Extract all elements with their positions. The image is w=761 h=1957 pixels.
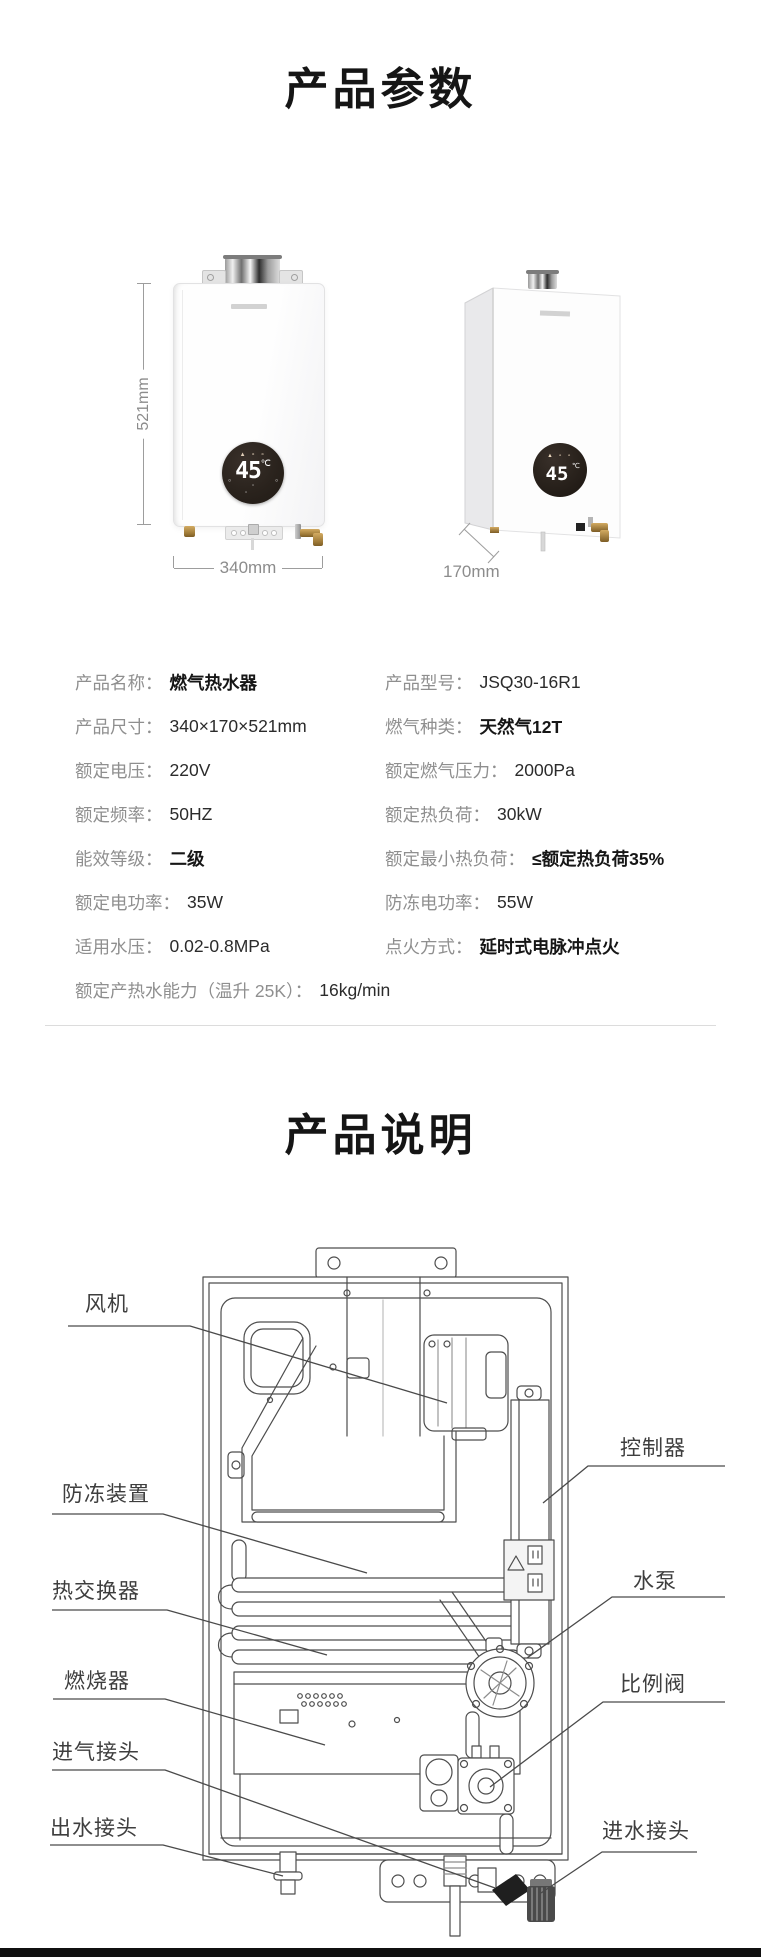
front-center-pipe xyxy=(251,538,254,550)
diagram-label-water-pump: 水泵 xyxy=(633,1565,677,1595)
dimension-width: 340mm xyxy=(173,556,323,580)
spec-label: 额定热负荷： xyxy=(385,802,490,827)
spec-row: 额定燃气压力：2000Pa xyxy=(385,748,664,792)
spec-row: 能效等级：二级 xyxy=(75,836,390,880)
front-center-clamp xyxy=(248,524,259,535)
spec-value: 16kg/min xyxy=(319,980,390,1001)
brand-logo xyxy=(231,304,267,309)
side-brass-connector xyxy=(600,530,609,542)
spec-row: 额定电压：220V xyxy=(75,748,390,792)
diagram-label-controller: 控制器 xyxy=(620,1432,686,1462)
top-mounting-bracket xyxy=(316,1248,456,1278)
display-bottom-icons: ∘ ∘ xyxy=(222,482,284,496)
spec-row: 额定产热水能力（温升 25K）：16kg/min xyxy=(75,968,390,1012)
dimension-height: 521mm xyxy=(143,283,144,525)
display-indicator-icons: ▲ ∘ ∘ xyxy=(222,451,284,458)
spec-label: 产品尺寸： xyxy=(75,714,163,739)
side-display-icons: ▲ ∘ ∘ xyxy=(547,453,572,459)
next-section-edge xyxy=(0,1948,761,1957)
diagram-label-gas-inlet: 进气接头 xyxy=(52,1736,140,1766)
spec-label: 额定最小热负荷： xyxy=(385,846,525,871)
front-right-connector xyxy=(313,533,323,546)
spec-label: 产品名称： xyxy=(75,670,163,695)
spec-value: 延时式电脉冲点火 xyxy=(480,934,620,959)
spec-row: 产品型号：JSQ30-16R1 xyxy=(385,660,664,704)
diagram-label-proportional-valve: 比例阀 xyxy=(620,1668,686,1698)
side-front-face xyxy=(493,288,620,538)
spec-label: 产品型号： xyxy=(385,670,473,695)
side-black-fitting xyxy=(576,523,585,531)
spec-label: 防冻电功率： xyxy=(385,890,490,915)
spec-value: JSQ30-16R1 xyxy=(480,672,581,693)
spec-row: 额定频率：50HZ xyxy=(75,792,390,836)
spec-row: 额定最小热负荷：≤额定热负荷35% xyxy=(385,836,664,880)
side-brand-logo xyxy=(540,310,570,316)
side-left-foot xyxy=(490,527,499,533)
spec-row: 适用水压：0.02-0.8MPa xyxy=(75,924,390,968)
leader-controller xyxy=(543,1466,725,1503)
spec-value: 燃气热水器 xyxy=(170,670,258,695)
spec-value: 220V xyxy=(170,760,211,781)
diagram-label-water-inlet: 进水接头 xyxy=(602,1815,690,1845)
front-left-fitting xyxy=(184,526,195,537)
spec-value: 50HZ xyxy=(170,804,213,825)
dimension-height-label: 521mm xyxy=(135,369,153,438)
diagram-label-fan: 风机 xyxy=(85,1288,129,1318)
side-flue-pipe xyxy=(528,272,557,289)
spec-value: 2000Pa xyxy=(515,760,575,781)
section-divider xyxy=(45,1025,716,1026)
side-display-unit: ℃ xyxy=(572,463,580,470)
spec-value: 35W xyxy=(187,892,223,913)
side-left-face xyxy=(465,288,493,530)
spec-row: 产品名称：燃气热水器 xyxy=(75,660,390,704)
product-detail-page: 产品参数 521mm ▲ ∘ ∘ 45℃ ∘ ∘ ∘ ∘ 340mm xyxy=(0,0,761,1957)
temperature-display: ▲ ∘ ∘ 45℃ ∘ ∘ ∘ ∘ xyxy=(222,442,284,504)
spec-label: 额定电压： xyxy=(75,758,163,783)
spec-label: 适用水压： xyxy=(75,934,163,959)
spec-value: ≤额定热负荷35% xyxy=(532,846,664,871)
spec-row: 防冻电功率：55W xyxy=(385,880,664,924)
fan-assembly xyxy=(424,1335,508,1440)
product-front-view: ▲ ∘ ∘ 45℃ ∘ ∘ ∘ ∘ xyxy=(173,283,325,527)
drain-pipe xyxy=(450,1886,460,1936)
flue-rim xyxy=(223,255,282,259)
dimension-depth-label: 170mm xyxy=(443,562,500,581)
spec-label: 额定电功率： xyxy=(75,890,180,915)
diagram-label-water-outlet: 出水接头 xyxy=(50,1812,138,1842)
spec-row: 产品尺寸：340×170×521mm xyxy=(75,704,390,748)
spec-row: 燃气种类：天然气12T xyxy=(385,704,664,748)
spec-row: 点火方式：延时式电脉冲点火 xyxy=(385,924,664,968)
spec-value: 0.02-0.8MPa xyxy=(170,936,270,957)
spec-value: 天然气12T xyxy=(480,714,563,739)
side-display-value: 45 xyxy=(546,463,569,485)
spec-label: 燃气种类： xyxy=(385,714,473,739)
spec-value: 30kW xyxy=(497,804,542,825)
spec-value: 二级 xyxy=(170,846,205,871)
controller-board xyxy=(504,1386,554,1658)
product-side-view: ▲ ∘ ∘ 45 ℃ 170mm xyxy=(440,255,650,585)
spec-label: 点火方式： xyxy=(385,934,473,959)
celsius-unit: ℃ xyxy=(261,459,271,469)
side-center-pipe xyxy=(541,532,545,551)
diagram-label-antifreeze: 防冻装置 xyxy=(62,1478,150,1508)
diagram-label-burner: 燃烧器 xyxy=(64,1665,130,1695)
parameters-section-title: 产品参数 xyxy=(0,66,761,114)
spec-label: 能效等级： xyxy=(75,846,163,871)
diagram-label-heat-exchanger: 热交换器 xyxy=(52,1575,140,1605)
flue-pipe xyxy=(225,258,280,283)
spec-value: 340×170×521mm xyxy=(170,716,307,737)
spec-row: 额定电功率：35W xyxy=(75,880,390,924)
spec-column-left: 产品名称：燃气热水器 产品尺寸：340×170×521mm 额定电压：220V … xyxy=(75,660,390,1012)
spec-label: 额定产热水能力（温升 25K）： xyxy=(75,978,312,1003)
spec-label: 额定燃气压力： xyxy=(385,758,508,783)
spec-column-right: 产品型号：JSQ30-16R1 燃气种类：天然气12T 额定燃气压力：2000P… xyxy=(385,660,664,968)
temperature-number: 45 xyxy=(235,458,261,484)
water-inlet-connector xyxy=(527,1879,555,1922)
spec-label: 额定频率： xyxy=(75,802,163,827)
description-section-title: 产品说明 xyxy=(0,1112,761,1160)
spec-row: 额定热负荷：30kW xyxy=(385,792,664,836)
dimension-width-label: 340mm xyxy=(214,558,283,578)
spec-value: 55W xyxy=(497,892,533,913)
